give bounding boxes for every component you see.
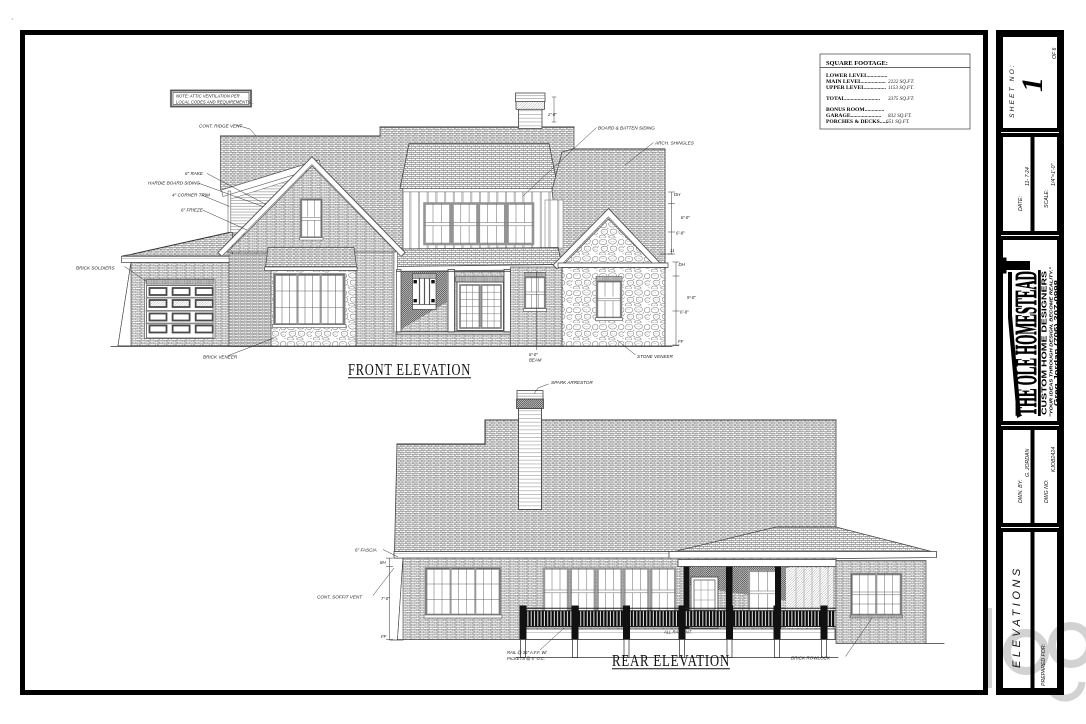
svg-text:DWG NO:: DWG NO: [1044, 479, 1050, 503]
svg-text:CONT. RIDGE VENT: CONT. RIDGE VENT [199, 124, 243, 129]
svg-text:6" RAKE: 6" RAKE [185, 171, 204, 176]
svg-text:8H: 8H [380, 560, 386, 565]
svg-text:4" CORNER TRIM: 4" CORNER TRIM [172, 193, 210, 198]
svg-text:UPPER LEVEL...............: UPPER LEVEL............... [826, 85, 887, 91]
svg-text:SQUARE FOOTAGE:: SQUARE FOOTAGE: [826, 60, 888, 67]
svg-text:TOTAL.........................: TOTAL......................... [826, 96, 881, 102]
svg-text:BEAM: BEAM [529, 358, 542, 363]
svg-text:BOARD & BATTEN SIDING: BOARD & BATTEN SIDING [598, 126, 655, 131]
svg-text:FF: FF [381, 634, 387, 639]
svg-text:2'-0": 2'-0" [547, 112, 557, 117]
svg-text:PREPARED FOR:: PREPARED FOR: [1041, 643, 1047, 686]
svg-text:BRICK VENEER: BRICK VENEER [203, 355, 238, 360]
svg-text:1/4"=1'-0": 1/4"=1'-0" [1051, 162, 1057, 186]
svg-text:DH: DH [674, 192, 681, 197]
svg-text:BRICK ROWLOCK: BRICK ROWLOCK [791, 656, 831, 661]
svg-text:8'-0": 8'-0" [529, 352, 538, 357]
svg-text:NOTE: ATTIC VENTILATION PER: NOTE: ATTIC VENTILATION PER [176, 94, 240, 99]
svg-text:CUSTOM HOME DESIGNERS: CUSTOM HOME DESIGNERS [1040, 271, 1049, 415]
svg-text:SCALE:: SCALE: [1044, 189, 1050, 208]
svg-text:THE OLE HOMESTEAD: THE OLE HOMESTEAD [1009, 271, 1043, 416]
svg-text:ARCH. SHINGLES: ARCH. SHINGLES [654, 141, 695, 146]
svg-text:PICKETS @ 5" O.C.: PICKETS @ 5" O.C. [507, 656, 545, 661]
svg-text:11: 11 [670, 248, 675, 253]
svg-text:REAR ELEVATION: REAR ELEVATION [612, 651, 730, 670]
svg-text:6" FASCIA: 6" FASCIA [355, 548, 377, 553]
svg-text:FF: FF [678, 339, 684, 344]
svg-text:DWN. BY:: DWN. BY: [1018, 479, 1024, 503]
svg-text:ALL RAIL PNT.: ALL RAIL PNT. [663, 630, 692, 635]
svg-text:STONE VENEER: STONE VENEER [637, 354, 674, 359]
svg-text:OF 6: OF 6 [1052, 47, 1058, 59]
svg-text:CONT. SOFFIT VENT: CONT. SOFFIT VENT [317, 595, 363, 600]
svg-text:HARDIE BOARD SIDING: HARDIE BOARD SIDING [148, 181, 200, 186]
svg-text:FRONT ELEVATION: FRONT ELEVATION [348, 360, 471, 379]
svg-text:ELEVATIONS: ELEVATIONS [1011, 565, 1023, 668]
svg-text:6'-8": 6'-8" [676, 231, 685, 236]
svg-text:3375 SQ.FT.: 3375 SQ.FT. [888, 96, 914, 102]
svg-text:9'-0": 9'-0" [687, 295, 696, 300]
svg-text:BRICK SOLDIERS: BRICK SOLDIERS [76, 266, 115, 271]
svg-text:G. JORDAN: G. JORDAN [1025, 449, 1031, 477]
svg-text:Greg Jordan (706) 207-0998: Greg Jordan (706) 207-0998 [1053, 279, 1060, 406]
svg-text:SHEET NO:: SHEET NO: [1009, 63, 1016, 118]
svg-text:LOCAL CODES AND REQUIREMENT: LOCAL CODES AND REQUIREMENTS... [176, 100, 254, 105]
svg-text:DATE:: DATE: [1018, 196, 1024, 211]
svg-text:PORCHES & DECKS......: PORCHES & DECKS...... [826, 119, 889, 125]
svg-text:SPARK ARRESTOR: SPARK ARRESTOR [551, 380, 593, 385]
svg-text:11- 7-24: 11- 7-24 [1025, 167, 1031, 186]
svg-text:1: 1 [1016, 77, 1049, 92]
svg-text:1153 SQ.FT.: 1153 SQ.FT. [888, 85, 914, 91]
svg-text:KJOB2424: KJOB2424 [1051, 447, 1057, 472]
svg-text:651 SQ.FT.: 651 SQ.FT. [886, 119, 910, 125]
svg-text:6'-8": 6'-8" [680, 310, 689, 315]
svg-text:RAIL @ 36" A.F.F. W/: RAIL @ 36" A.F.F. W/ [507, 650, 547, 655]
svg-text:8'-0": 8'-0" [681, 215, 690, 220]
svg-text:DH: DH [679, 262, 686, 267]
svg-text:7'-0": 7'-0" [381, 596, 390, 601]
svg-text:6" FRIEZE: 6" FRIEZE [181, 208, 204, 213]
